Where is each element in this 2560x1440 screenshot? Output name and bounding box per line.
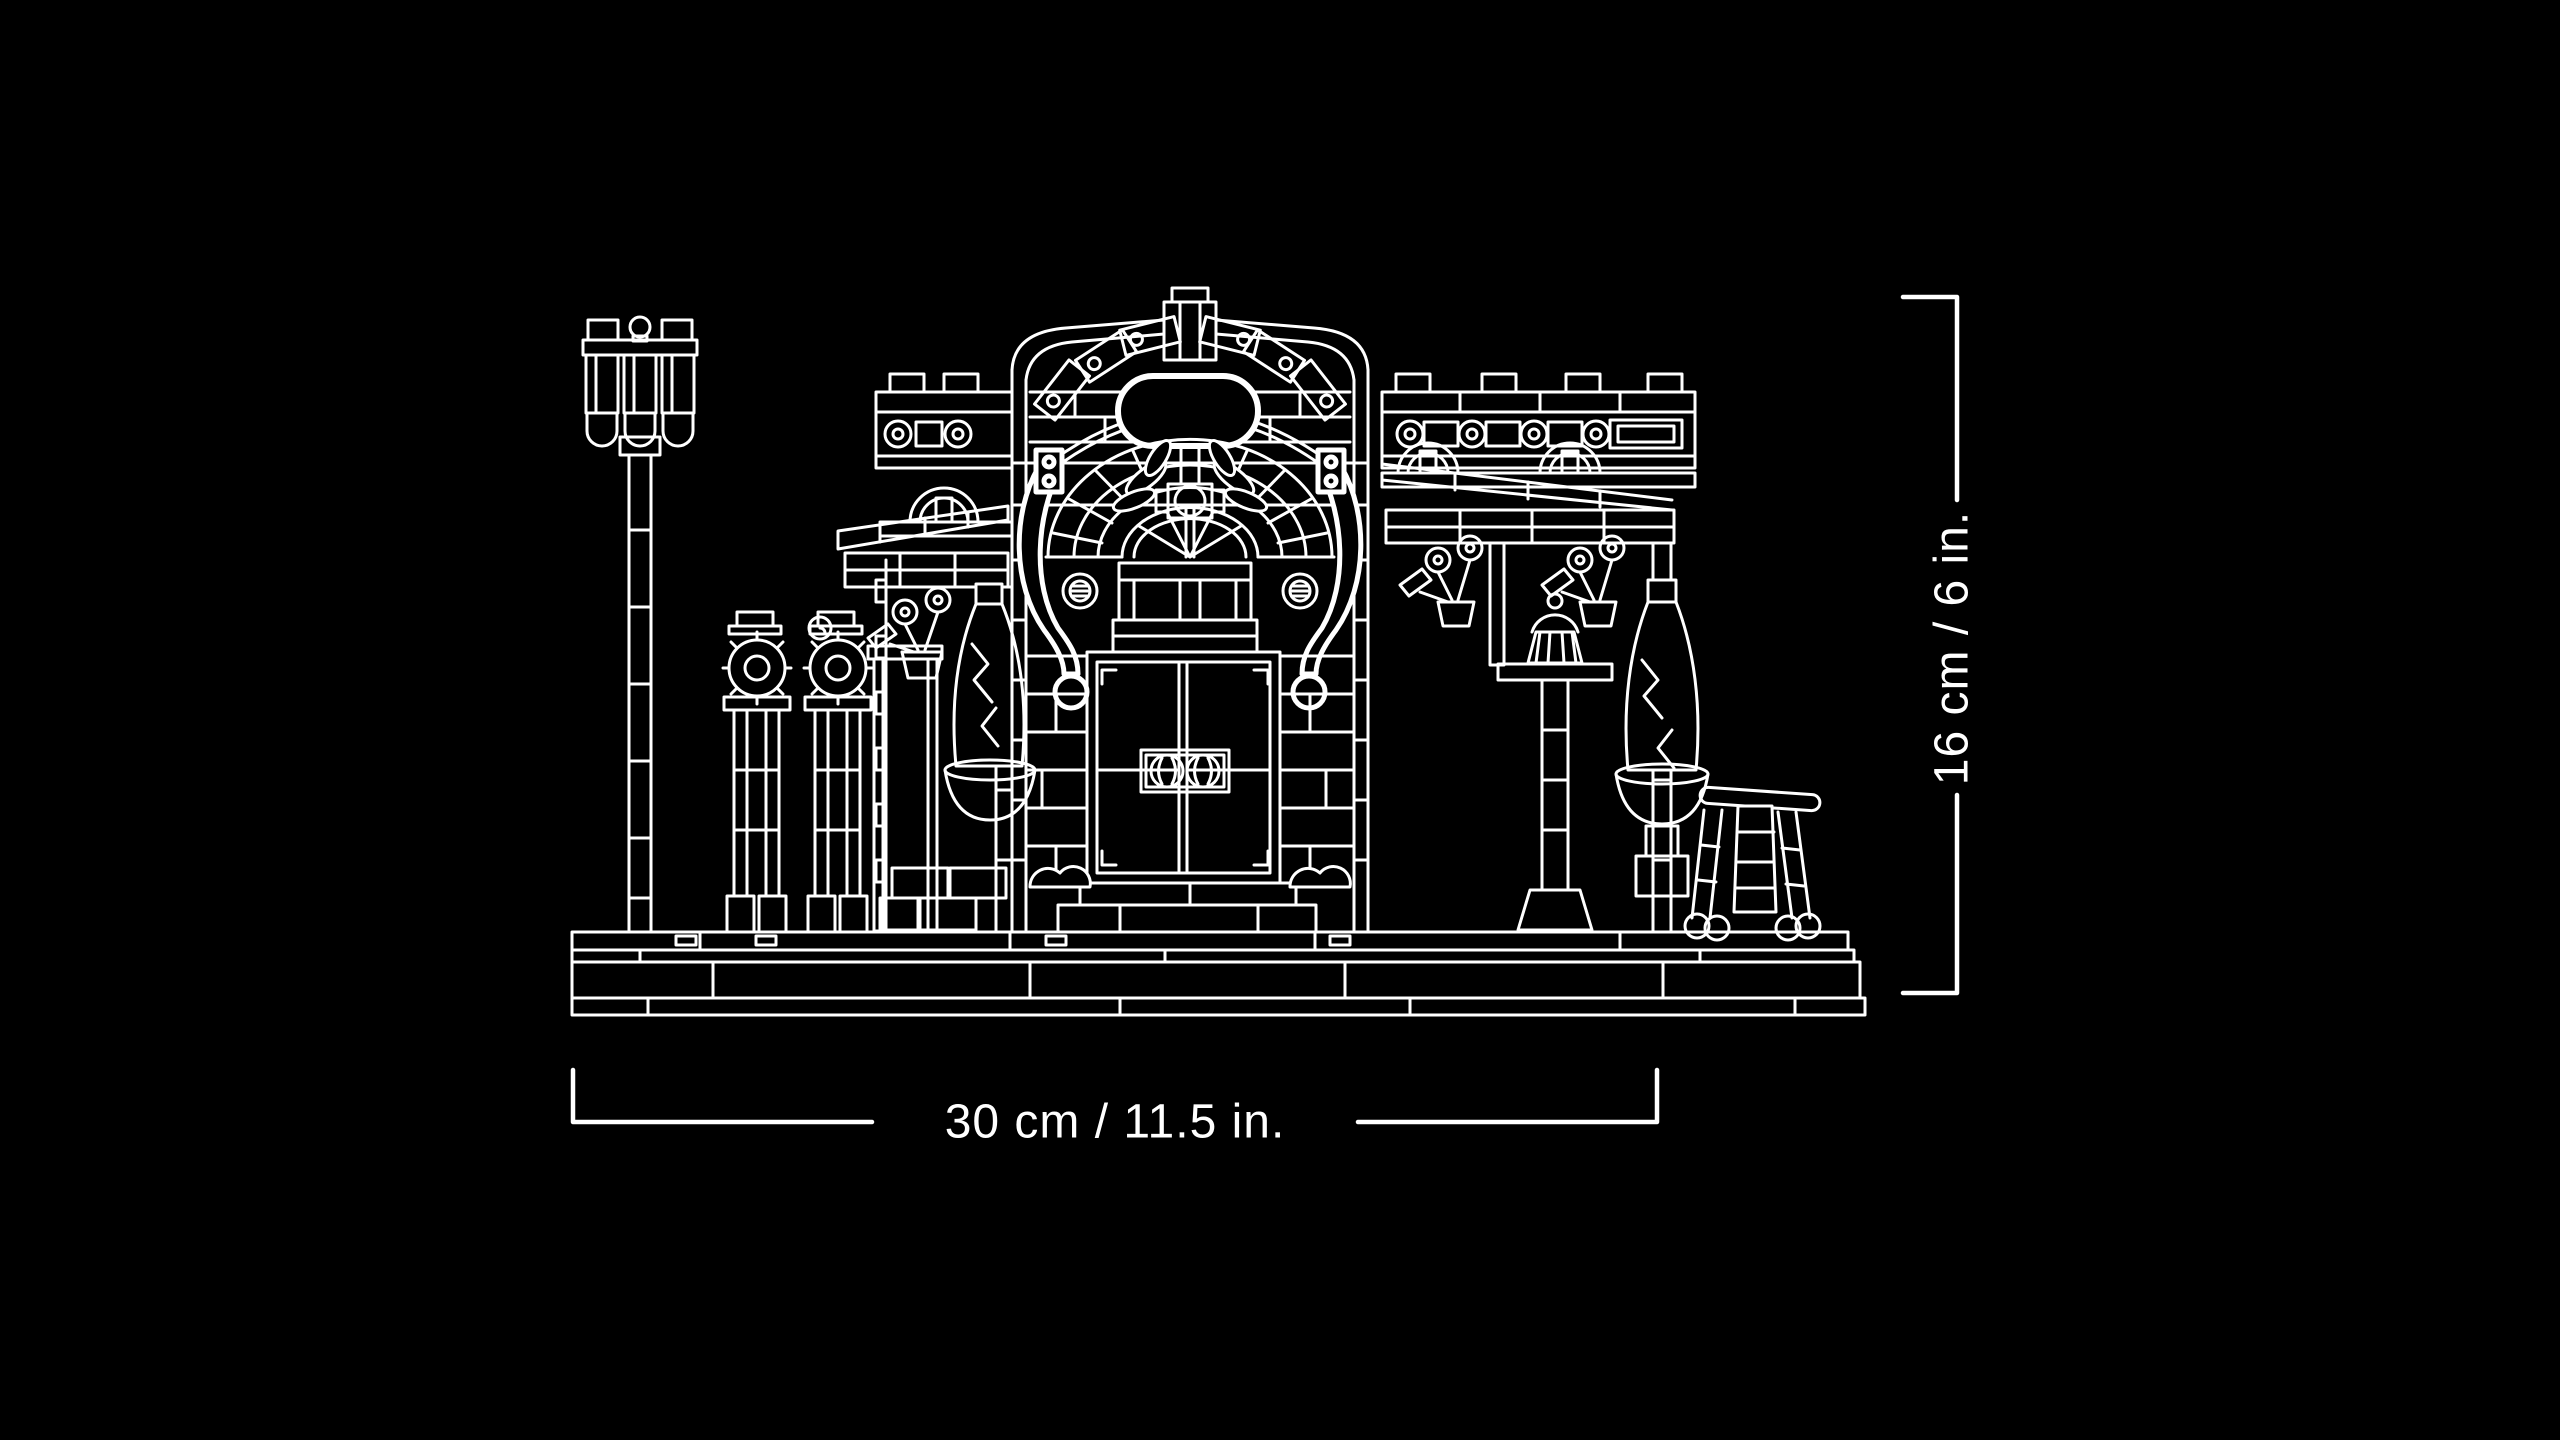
height-dimension-label: 16 cm / 6 in. xyxy=(1925,511,1980,785)
central-pavilion xyxy=(1012,288,1368,932)
double-door xyxy=(1087,652,1280,883)
side-table xyxy=(868,646,942,931)
right-wing xyxy=(1382,374,1708,932)
fan-window xyxy=(1046,439,1334,557)
oval-sign xyxy=(1118,376,1258,446)
tusk-ornament xyxy=(1019,450,1087,708)
baseplate xyxy=(572,932,1865,1015)
brick-pile xyxy=(880,868,1006,930)
bush-right xyxy=(1290,867,1350,887)
cafe-table xyxy=(1498,664,1612,930)
snail-spiral xyxy=(820,628,825,633)
cupcake xyxy=(1528,594,1582,663)
bush-left xyxy=(1030,867,1090,887)
hanging-flowers-right xyxy=(1400,536,1624,626)
lego-building-line-art xyxy=(0,0,2560,1440)
deck-chair xyxy=(1685,787,1820,940)
flower-stand xyxy=(723,612,791,932)
cone-tree-right xyxy=(1616,580,1708,896)
street-lamp xyxy=(583,317,697,932)
width-dimension-label: 30 cm / 11.5 in. xyxy=(945,1095,1286,1150)
product-dimensions-image: 30 cm / 11.5 in. 16 cm / 6 in. xyxy=(0,0,2560,1440)
